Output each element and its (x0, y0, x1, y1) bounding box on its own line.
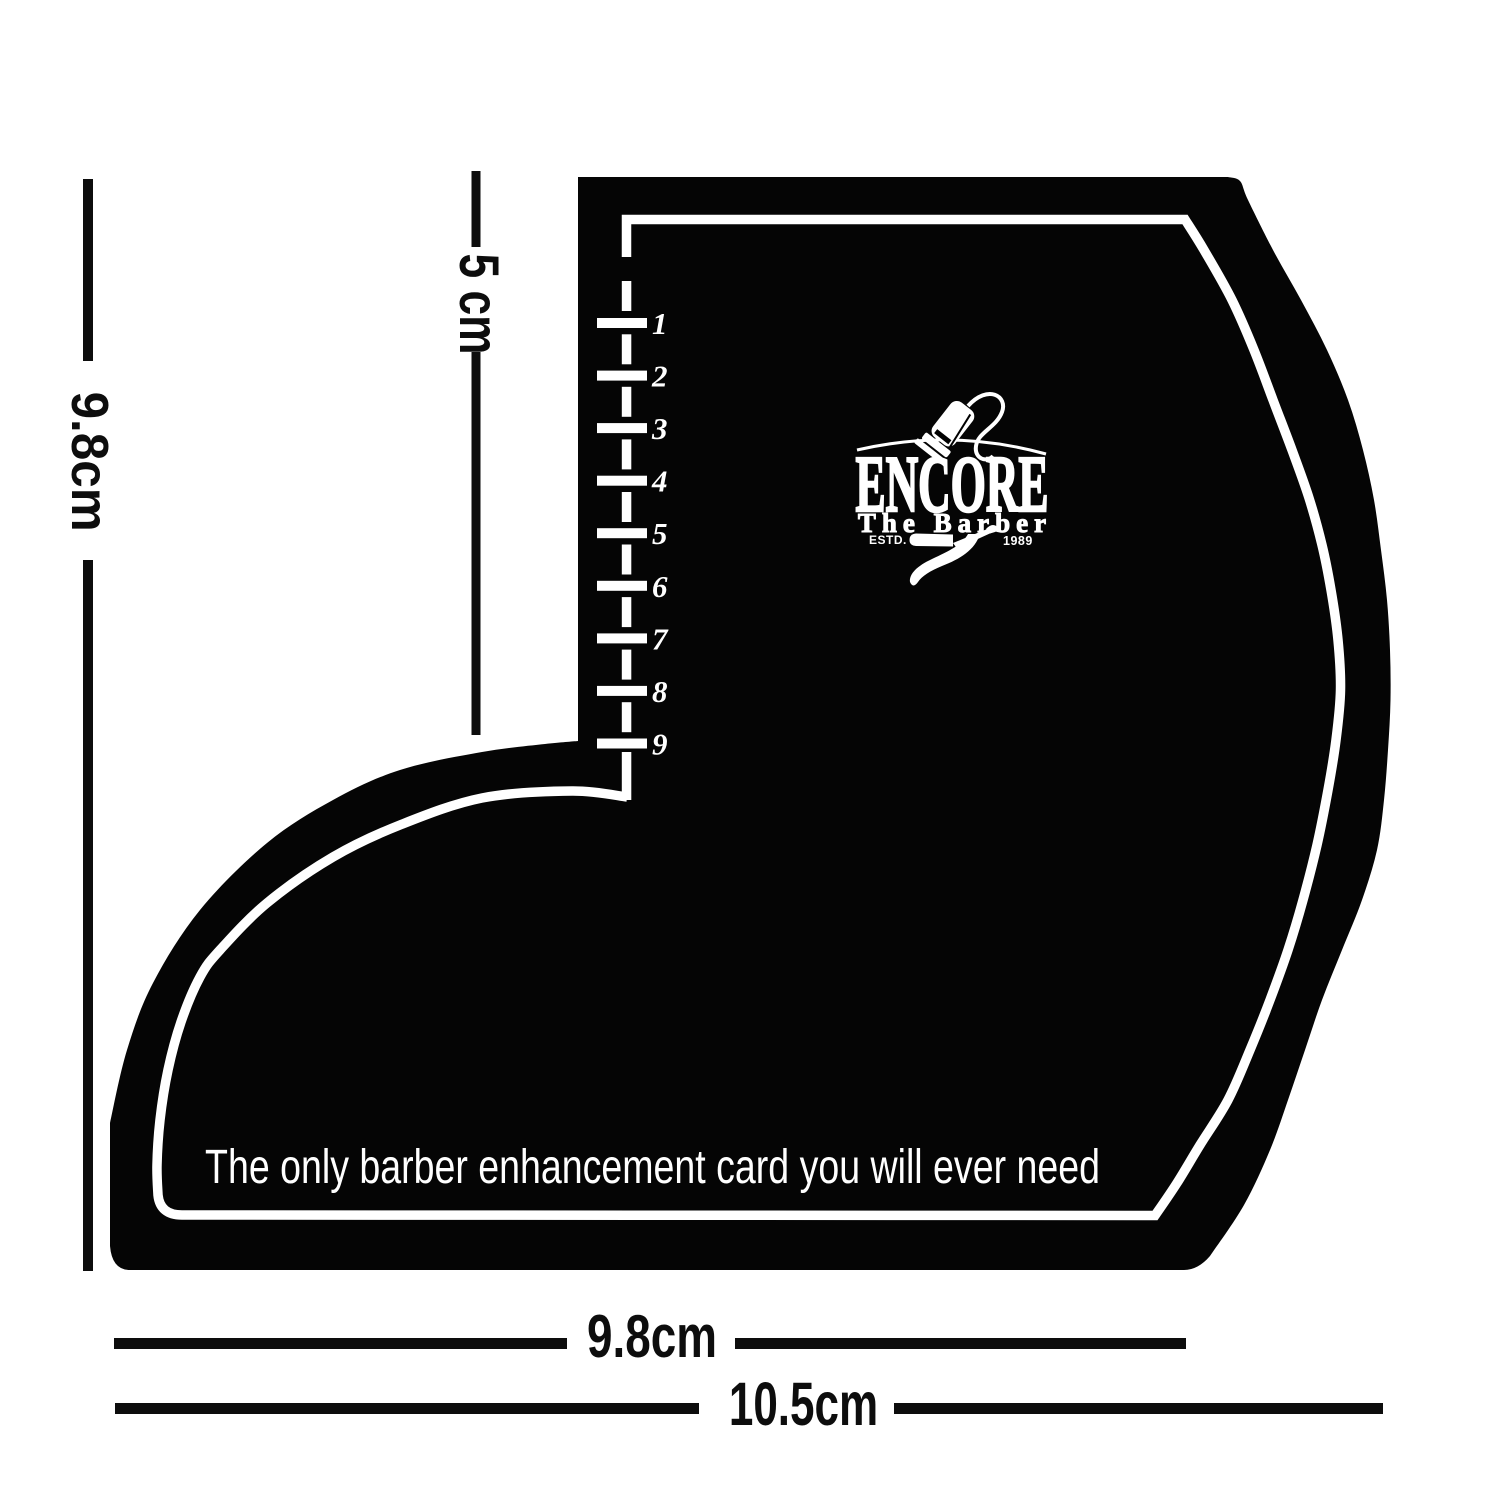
svg-text:1989: 1989 (1003, 534, 1033, 548)
svg-text:4: 4 (651, 464, 668, 499)
svg-text:3: 3 (651, 411, 668, 446)
svg-text:2: 2 (651, 359, 668, 394)
svg-text:9: 9 (652, 727, 668, 762)
svg-text:9.8cm: 9.8cm (587, 1304, 717, 1370)
svg-text:10.5cm: 10.5cm (729, 1371, 878, 1439)
svg-text:8: 8 (652, 674, 668, 709)
svg-text:5: 5 (652, 516, 668, 551)
svg-text:1: 1 (652, 306, 668, 341)
svg-text:7: 7 (652, 621, 669, 656)
svg-text:9.8cm: 9.8cm (61, 392, 119, 532)
svg-text:6: 6 (652, 569, 668, 604)
svg-text:5 cm: 5 cm (448, 253, 511, 354)
svg-text:ESTD.: ESTD. (869, 533, 907, 547)
svg-text:The only barber enhancement ca: The only barber enhancement card you wil… (205, 1141, 1100, 1194)
